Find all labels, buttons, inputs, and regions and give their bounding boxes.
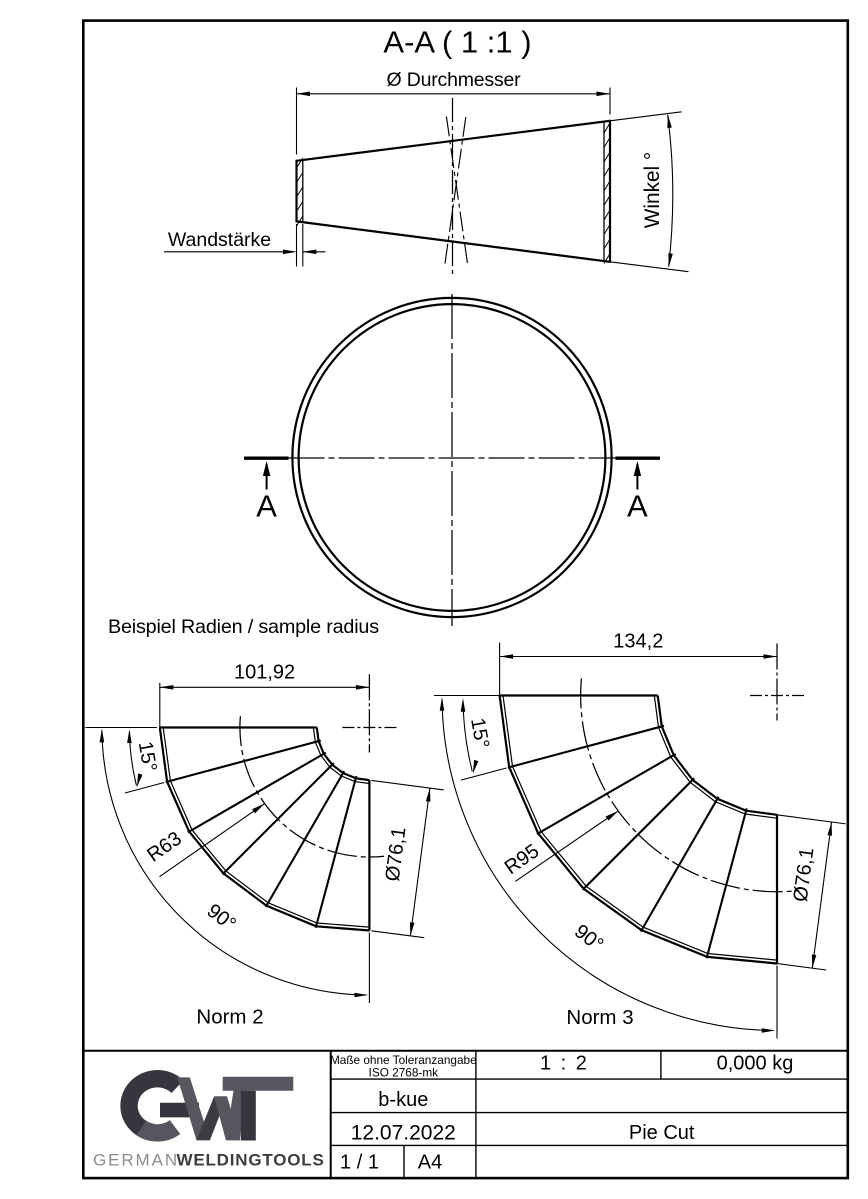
svg-text:Pie Cut: Pie Cut	[629, 1122, 695, 1144]
svg-text:Ø Durchmesser: Ø Durchmesser	[387, 69, 522, 91]
svg-text:12.07.2022: 12.07.2022	[351, 1122, 456, 1145]
svg-text:b-kue: b-kue	[378, 1089, 428, 1111]
svg-text:Beispiel Radien / sample radiu: Beispiel Radien / sample radius	[108, 616, 379, 638]
svg-text:Norm 3: Norm 3	[566, 1006, 633, 1029]
svg-text:0,000 kg: 0,000 kg	[717, 1053, 794, 1075]
svg-text:Wandstärke: Wandstärke	[168, 229, 271, 251]
svg-text:134,2: 134,2	[613, 631, 663, 653]
svg-text:WELDINGTOOLS: WELDINGTOOLS	[177, 1151, 325, 1170]
svg-text:A-A ( 1 :1 ): A-A ( 1 :1 )	[383, 25, 531, 60]
svg-text:GERMAN: GERMAN	[93, 1151, 179, 1170]
svg-text:Norm 2: Norm 2	[196, 1006, 263, 1029]
svg-text:A: A	[627, 489, 648, 524]
svg-text:1 / 1: 1 / 1	[340, 1152, 379, 1174]
svg-text:101,92: 101,92	[234, 661, 295, 683]
svg-text:1 : 2: 1 : 2	[540, 1053, 589, 1075]
svg-text:ISO 2768-mk: ISO 2768-mk	[369, 1066, 439, 1080]
svg-text:Winkel °: Winkel °	[641, 152, 664, 229]
svg-text:A: A	[256, 489, 277, 524]
svg-text:A4: A4	[418, 1152, 442, 1174]
